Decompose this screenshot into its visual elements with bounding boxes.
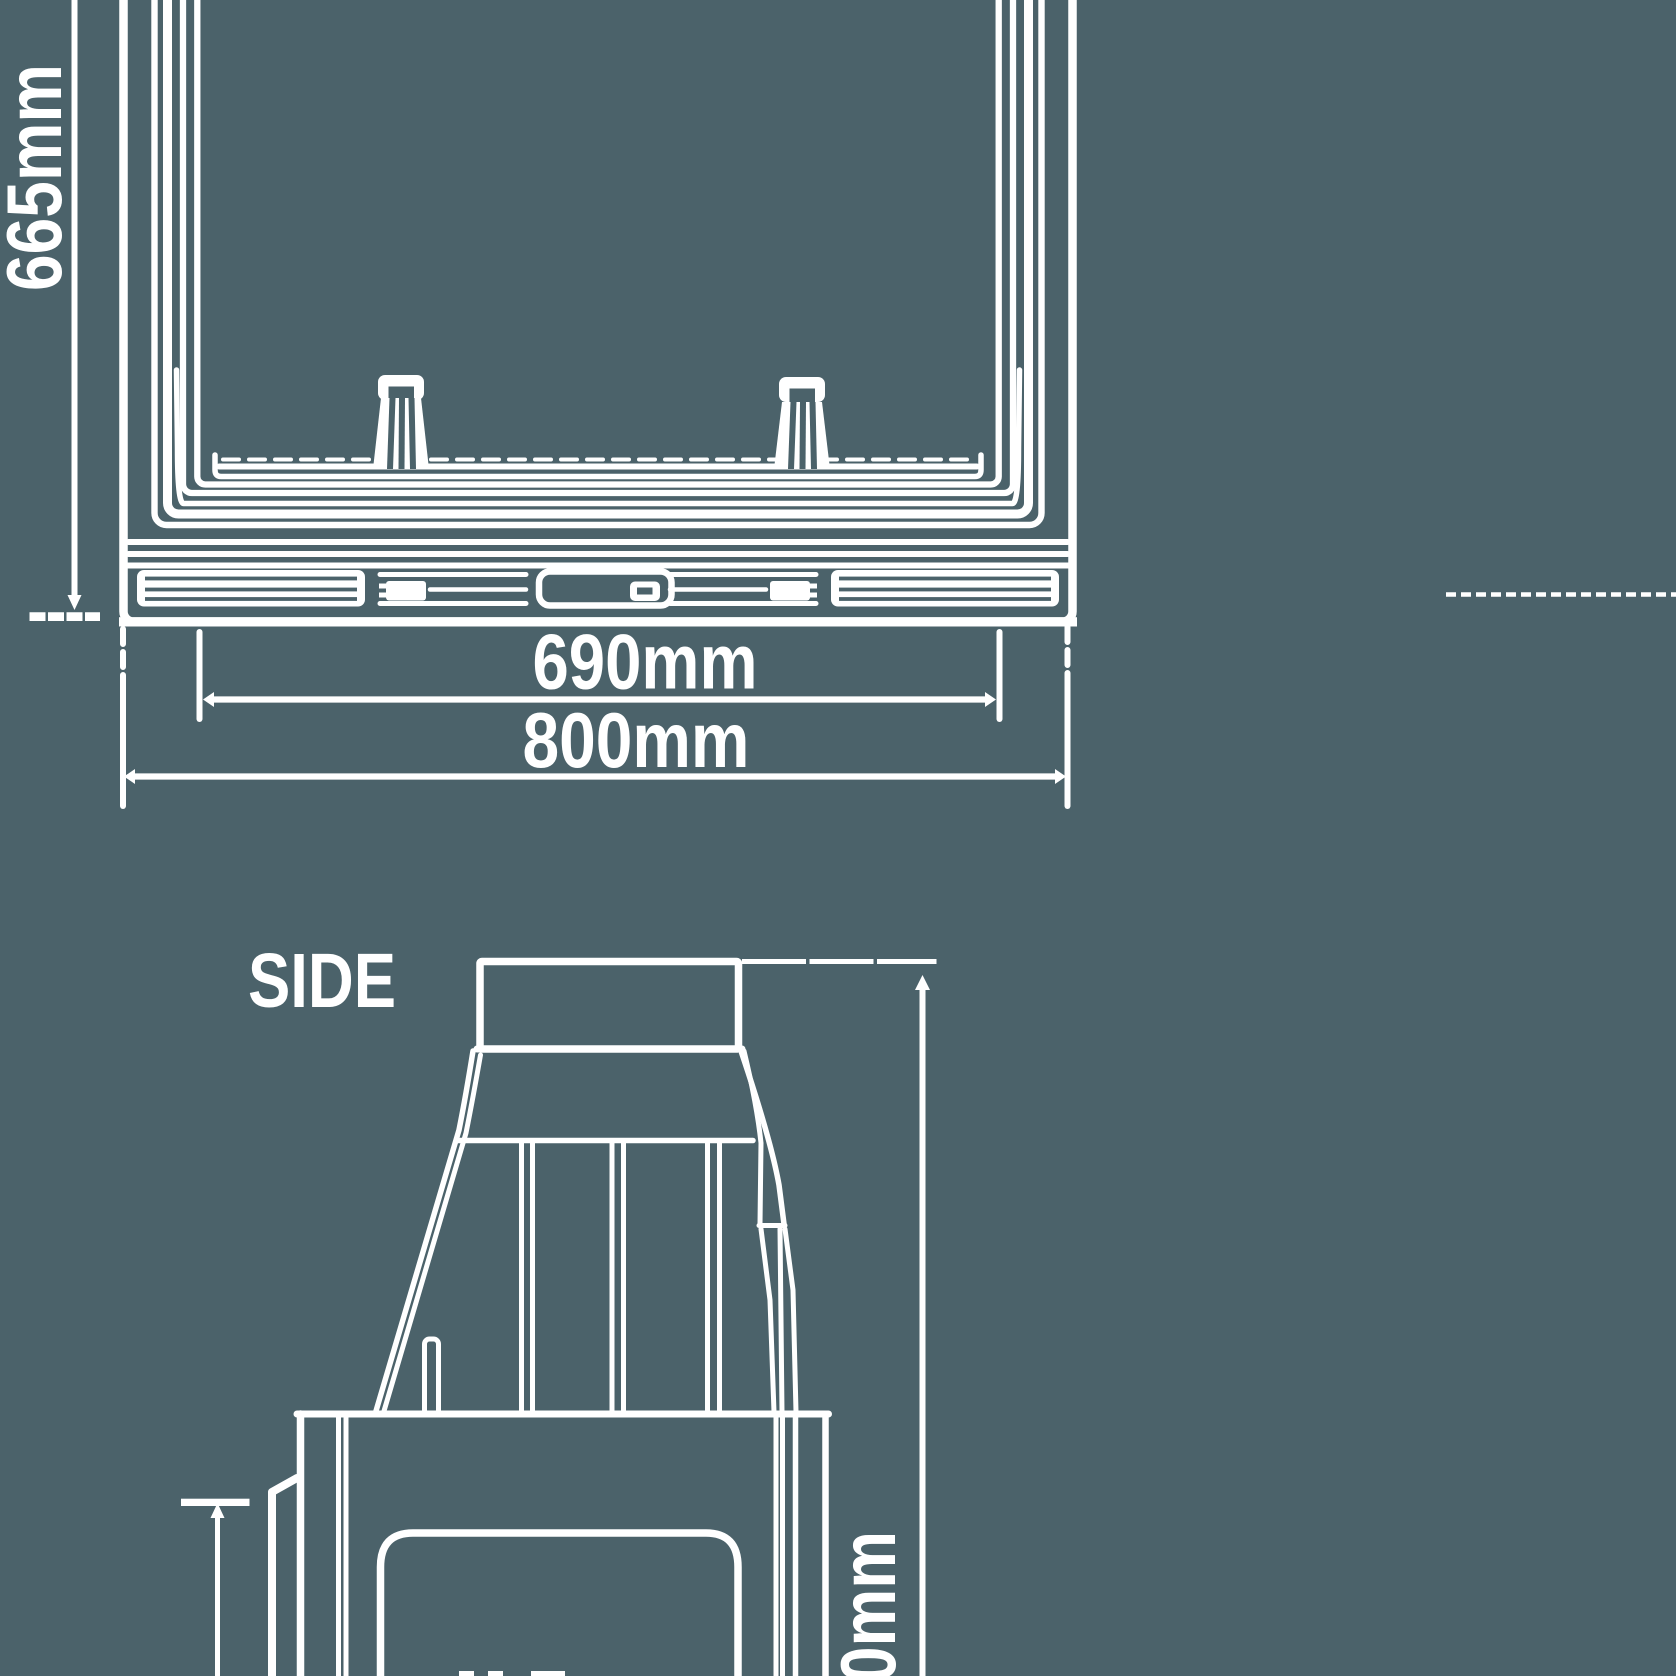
svg-text:1340mm: 1340mm xyxy=(824,1531,912,1676)
svg-text:665mm: 665mm xyxy=(0,64,78,291)
svg-text:800mm: 800mm xyxy=(523,696,750,784)
svg-text:SIDE: SIDE xyxy=(248,938,396,1024)
svg-text:690mm: 690mm xyxy=(533,618,758,706)
